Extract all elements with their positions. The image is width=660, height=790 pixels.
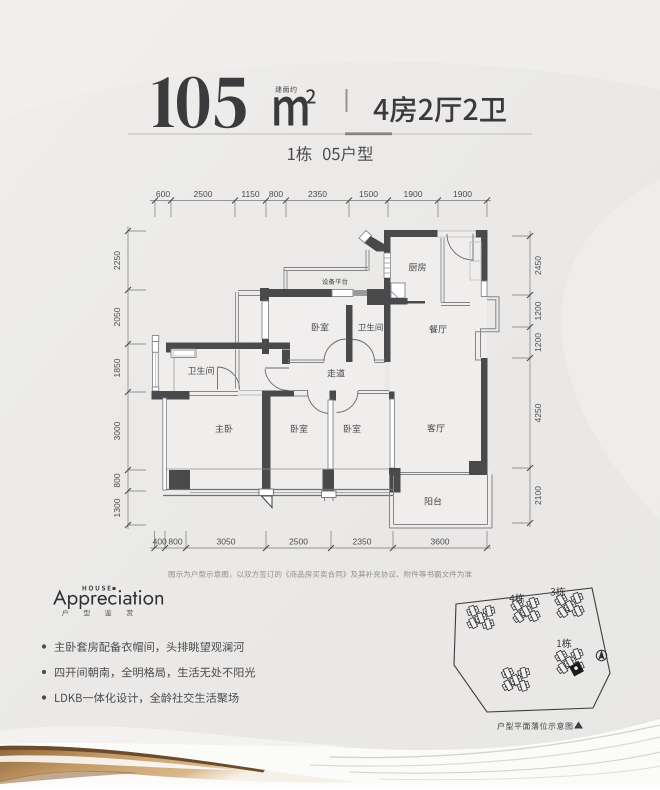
svg-text:1300: 1300 xyxy=(112,498,122,517)
svg-text:1850: 1850 xyxy=(112,358,122,377)
svg-text:4250: 4250 xyxy=(533,403,543,422)
svg-text:2100: 2100 xyxy=(533,486,543,505)
svg-text:600: 600 xyxy=(156,189,170,199)
svg-text:800: 800 xyxy=(112,473,122,487)
svg-text:2450: 2450 xyxy=(533,256,543,275)
svg-text:400: 400 xyxy=(153,537,167,547)
svg-text:2350: 2350 xyxy=(308,189,327,199)
svg-text:3000: 3000 xyxy=(112,421,122,440)
svg-text:2500: 2500 xyxy=(194,189,213,199)
svg-text:2350: 2350 xyxy=(353,537,372,547)
svg-text:2500: 2500 xyxy=(289,537,308,547)
svg-text:1150: 1150 xyxy=(241,189,260,199)
svg-text:800: 800 xyxy=(269,189,283,199)
svg-text:1900: 1900 xyxy=(404,189,423,199)
svg-text:800: 800 xyxy=(168,537,182,547)
svg-text:2050: 2050 xyxy=(112,307,122,326)
svg-text:1200: 1200 xyxy=(533,301,543,320)
svg-text:2250: 2250 xyxy=(112,251,122,270)
svg-text:1500: 1500 xyxy=(359,189,378,199)
svg-text:3600: 3600 xyxy=(431,537,450,547)
svg-text:1200: 1200 xyxy=(533,333,543,352)
svg-text:3050: 3050 xyxy=(217,537,236,547)
svg-text:1900: 1900 xyxy=(453,189,472,199)
